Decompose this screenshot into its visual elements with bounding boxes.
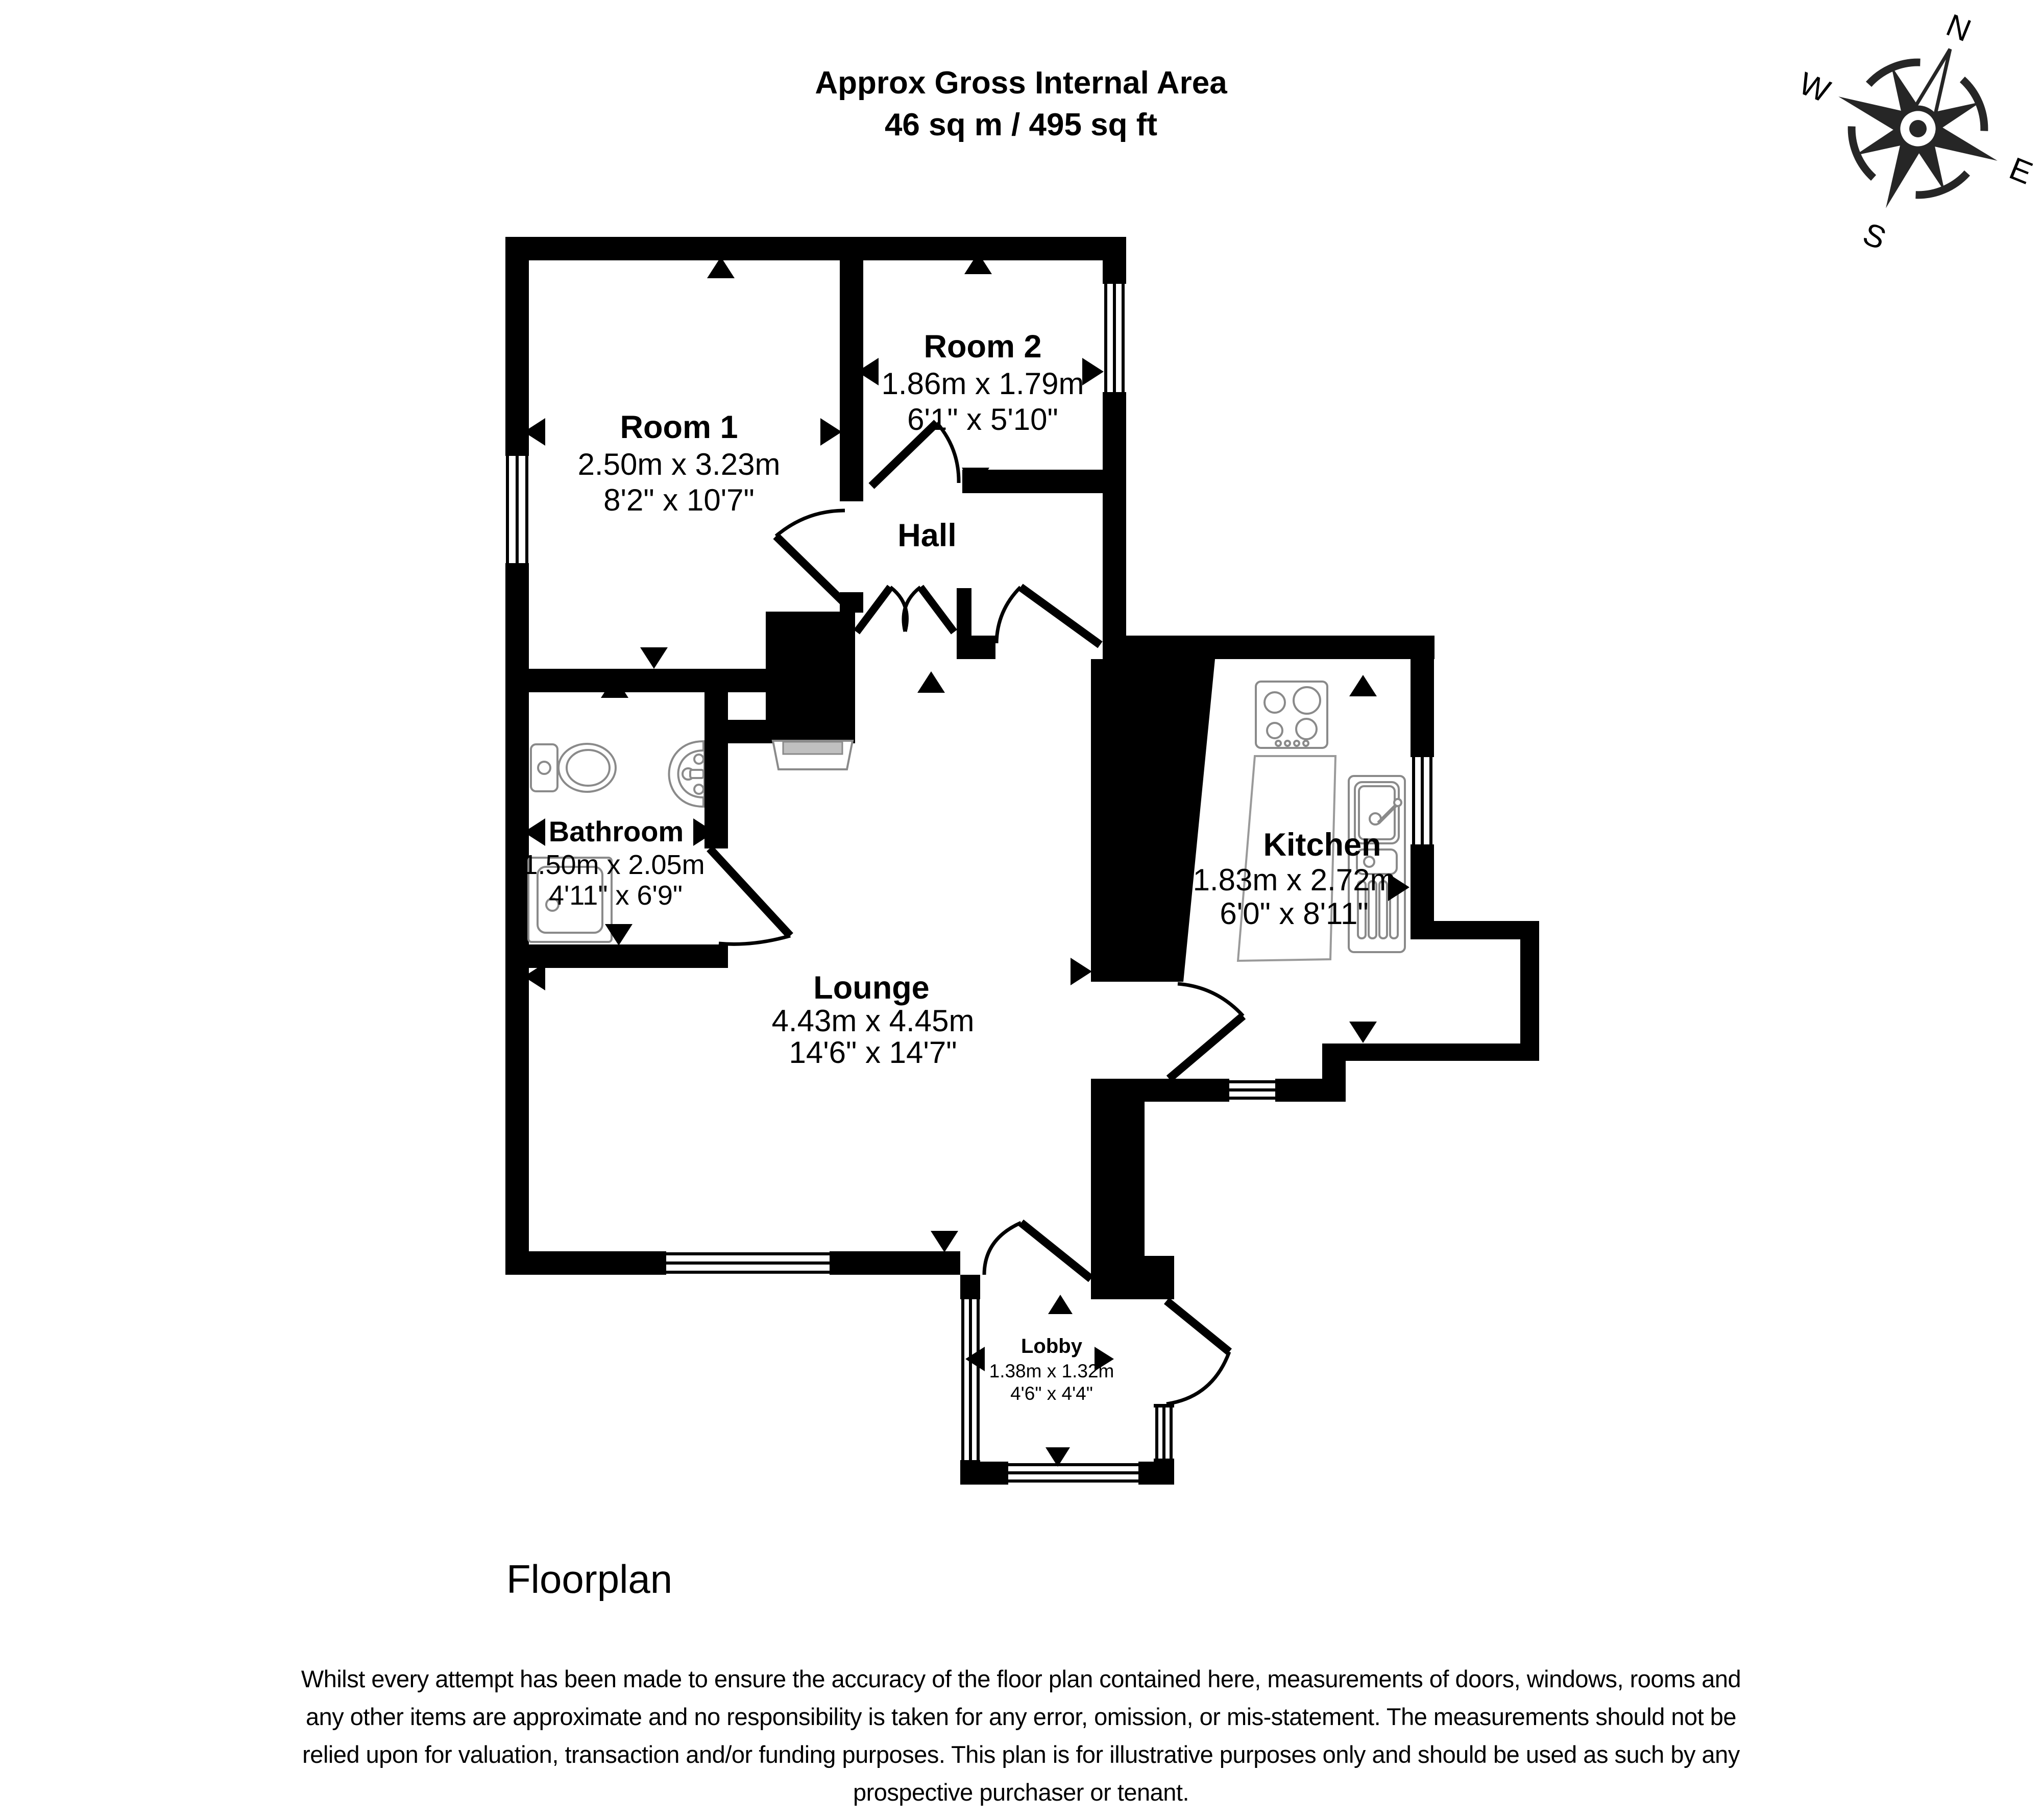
wall: [840, 237, 863, 501]
arrow-down-icon: [1349, 1022, 1377, 1043]
wall: [1322, 1061, 1346, 1102]
disclaimer: Whilst every attempt has been made to en…: [204, 1660, 1838, 1811]
disclaimer-line: relied upon for valuation, transaction a…: [204, 1736, 1838, 1774]
room-label-lobby: Lobby 1.38m x 1.32m 4'6" x 4'4": [989, 1335, 1114, 1404]
window-symbol: [1103, 284, 1126, 392]
wall: [1322, 1044, 1539, 1061]
arrow-up-icon: [1349, 675, 1377, 696]
toilet-icon: [531, 744, 616, 792]
room-dim-metric: 1.50m x 2.05m: [522, 850, 704, 880]
room-name: Lounge: [813, 970, 929, 1006]
door-leaf: [1166, 1301, 1229, 1352]
arrow-down-icon: [640, 647, 668, 669]
arrow-down-icon: [931, 1231, 958, 1252]
wall: [962, 470, 1126, 493]
room-dim-metric: 2.50m x 3.23m: [578, 447, 781, 481]
room-dim-imperial: 4'6" x 4'4": [1010, 1383, 1093, 1404]
disclaimer-line: any other items are approximate and no r…: [204, 1698, 1838, 1736]
room-name: Kitchen: [1263, 827, 1381, 863]
room-dim-metric: 4.43m x 4.45m: [772, 1004, 975, 1038]
room-label-kitchen: Kitchen 1.83m x 2.72m 6'0" x 8'11": [1193, 827, 1396, 931]
window-symbol: [1008, 1462, 1138, 1485]
door-arc: [1178, 984, 1243, 1016]
room-name: Hall: [897, 518, 957, 553]
door-leaf: [1021, 1223, 1091, 1279]
wall: [1411, 921, 1539, 939]
disclaimer-line: prospective purchaser or tenant.: [204, 1774, 1838, 1811]
compass-e: E: [2004, 151, 2037, 191]
floorplan-page: { "title": { "line1": "Approx Gross Inte…: [0, 0, 2042, 1820]
wall: [1091, 659, 1215, 982]
room-labels: Room 1 2.50m x 3.23m 8'2" x 10'7" Room 2…: [522, 329, 1395, 1404]
disclaimer-line: Whilst every attempt has been made to en…: [204, 1660, 1838, 1698]
room-dim-imperial: 6'0" x 8'11": [1220, 896, 1368, 931]
door-leaf: [710, 848, 790, 936]
room-name: Bathroom: [549, 815, 684, 847]
door-arc: [776, 511, 845, 536]
compass-icon: N E S W: [1751, 0, 2042, 298]
door-leaf: [1169, 1016, 1243, 1079]
fireplace: [773, 741, 853, 769]
door-arc: [719, 936, 790, 944]
room-dim-metric: 1.38m x 1.32m: [989, 1361, 1114, 1381]
wall: [1520, 939, 1539, 1044]
door-arc: [984, 1223, 1021, 1275]
arrow-right-icon: [1071, 958, 1092, 985]
room-dim-imperial: 4'11" x 6'9": [549, 880, 683, 911]
wall: [505, 669, 855, 692]
room-name: Room 1: [620, 409, 738, 445]
wall: [704, 692, 728, 848]
door-arc: [996, 587, 1020, 643]
room-dim-imperial: 8'2" x 10'7": [603, 483, 755, 517]
wall: [1091, 1256, 1174, 1299]
arrow-right-icon: [820, 418, 842, 446]
room-dim-imperial: 6'1" x 5'10": [907, 402, 1058, 436]
compass-w: W: [1794, 66, 1835, 110]
arrow-up-icon: [917, 671, 945, 693]
wall: [505, 237, 529, 1275]
room-dim-metric: 1.83m x 2.72m: [1193, 863, 1396, 897]
wall: [704, 720, 766, 743]
wall: [960, 1275, 980, 1299]
compass-letters: N E S W: [1751, 0, 2042, 298]
door-leaf: [776, 536, 844, 602]
compass-n: N: [1941, 8, 1976, 49]
room-label-lounge: Lounge 4.43m x 4.45m 14'6" x 14'7": [772, 970, 975, 1070]
wall: [505, 944, 728, 968]
door-leaf: [1020, 587, 1100, 645]
room-label-bathroom: Bathroom 1.50m x 2.05m 4'11" x 6'9": [522, 815, 704, 911]
arrow-up-icon: [1048, 1295, 1073, 1314]
window-symbol: [1229, 1079, 1275, 1102]
window-symbol: [666, 1250, 830, 1276]
hob-icon: [1256, 682, 1327, 748]
room-dim-metric: 1.86m x 1.79m: [882, 367, 1084, 401]
wall: [957, 636, 995, 659]
window-symbol: [1154, 1408, 1174, 1459]
room-dim-imperial: 14'6" x 14'7": [789, 1035, 957, 1070]
window-symbol: [1411, 757, 1434, 844]
door-leaf: [920, 587, 954, 632]
floorplan-drawing: Room 1 2.50m x 3.23m 8'2" x 10'7" Room 2…: [0, 0, 2042, 1820]
room-label-room1: Room 1 2.50m x 3.23m 8'2" x 10'7": [578, 409, 781, 517]
wall: [505, 237, 1126, 260]
floorplan-label: Floorplan: [506, 1556, 672, 1603]
room-label-room2: Room 2 1.86m x 1.79m 6'1" x 5'10": [882, 329, 1084, 436]
compass-s: S: [1858, 216, 1891, 256]
basin-icon: [669, 741, 704, 807]
room-name: Lobby: [1021, 1335, 1083, 1357]
room-label-hall: Hall: [897, 518, 957, 553]
wall: [1103, 636, 1435, 659]
wall: [1091, 1079, 1145, 1281]
window-symbol: [959, 1299, 982, 1460]
room-name: Room 2: [923, 329, 1041, 365]
door-arc: [1166, 1352, 1229, 1404]
window-symbol: [504, 456, 530, 563]
arrow-right-icon: [1082, 358, 1104, 385]
